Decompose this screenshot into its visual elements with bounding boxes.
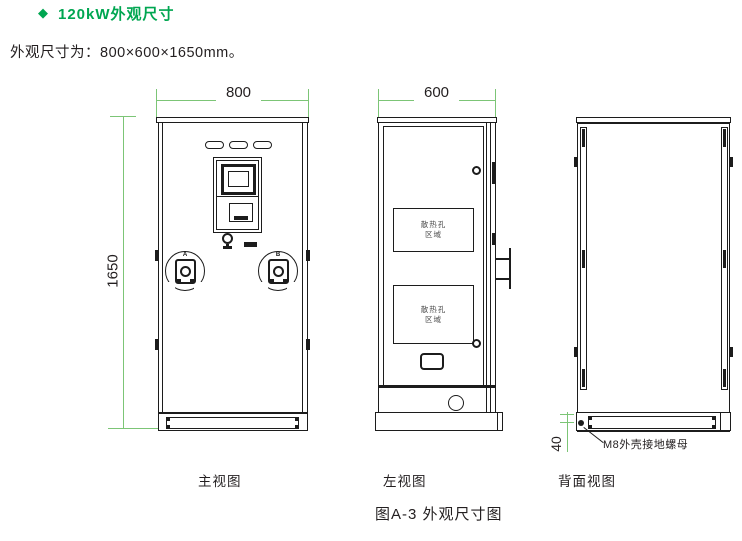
emergency-stop-icon [222,233,233,244]
heat-vent-area-lower: 散热孔 区域 [393,285,474,344]
dimension-tick [560,422,574,423]
gun-socket-pin [180,266,191,277]
seam-mark [582,250,585,268]
seam-mark [582,369,585,387]
left-view-caption: 左视图 [383,470,427,490]
plinth-top-line [158,412,308,414]
extension-line [308,89,309,118]
hinge-mark [729,347,733,357]
door-lock [472,166,481,175]
seam-mark [723,250,726,268]
vent-slot [229,141,248,149]
hinge-mark [155,250,159,261]
section-title: 120kW外观尺寸 [58,3,175,24]
dimension-tick [108,428,158,429]
heat-vent-area-upper: 散热孔 区域 [393,208,474,252]
edge-mark [492,233,495,245]
holster-bracket-line [509,248,511,289]
front-edge-line [486,123,487,412]
socket-mark [177,279,181,282]
display-screen [228,171,249,187]
corner-mark [589,425,592,428]
corner-mark [167,425,170,428]
door-frame-line [162,123,163,413]
extension-line [378,89,379,118]
seam-mark [723,369,726,387]
gun-b-label: B [258,252,298,259]
holster-notch [257,282,268,294]
vent-slot [205,141,224,149]
side-door-panel [383,126,484,387]
plinth-divider-line [720,413,721,431]
corner-mark [295,425,298,428]
hinge-mark [574,347,578,357]
socket-mark [190,279,194,282]
figure-caption: 图A-3 外观尺寸图 [375,503,503,524]
plinth-recess [166,417,299,429]
section-bullet-icon: ◆ [38,5,48,21]
dim-ground-nut-offset: 40 [548,426,564,462]
corner-mark [712,425,715,428]
extension-line [156,89,157,118]
cable-entry-hole [448,395,464,411]
plinth [375,412,503,431]
dimension-line [123,116,124,429]
back-view-caption: 背面视图 [558,470,616,490]
seam-mark [723,129,726,147]
vent-area-label: 区域 [425,315,442,325]
gun-a-label: A [165,252,205,259]
front-edge-line [490,123,491,412]
extension-line [495,89,496,118]
holster-notch [194,282,205,294]
ground-nut-note: M8外壳接地螺母 [603,436,688,452]
corner-mark [589,417,592,420]
holster-notch [164,282,175,294]
corner-mark [167,418,170,421]
vent-area-label: 散热孔 [421,305,447,315]
cable-gland [420,353,444,370]
corner-mark [295,418,298,421]
holster-bracket-line [496,258,510,260]
manual-page: ◆ 120kW外观尺寸 外观尺寸为：800×600×1650mm。 800 16… [0,0,742,541]
corner-mark [712,417,715,420]
dimension-tick [110,116,136,117]
vent-area-label: 散热孔 [421,220,447,230]
socket-mark [270,279,274,282]
hinge-mark [306,339,310,350]
hinge-mark [574,157,578,167]
front-view-caption: 主视图 [198,470,242,490]
m8-ground-nut [578,420,584,426]
dimension-line [567,412,568,452]
hinge-mark [155,339,159,350]
indicator-chip [244,242,257,247]
door-frame-line [302,123,303,413]
hinge-mark [306,250,310,261]
dim-left-depth: 600 [414,85,459,101]
edge-mark [492,162,495,184]
socket-mark [283,279,287,282]
dimension-tick [560,414,574,415]
vent-slot [253,141,272,149]
dim-front-height: 1650 [106,249,122,294]
holster-notch [287,282,298,294]
emergency-stop-base [223,246,232,249]
plinth-recess [588,416,716,429]
gun-socket-pin [273,266,284,277]
plinth-divider-line [497,413,498,431]
holster-bracket-line [496,278,510,280]
door-bottom-line [379,385,495,388]
vent-area-label: 区域 [425,230,442,240]
seam-mark [582,129,585,147]
cabinet-body [577,123,730,432]
card-slot [234,216,248,220]
overall-dimensions-text: 外观尺寸为：800×600×1650mm。 [10,41,244,62]
dim-front-width: 800 [216,85,261,101]
hinge-mark [729,157,733,167]
panel-divider-line [217,196,258,197]
